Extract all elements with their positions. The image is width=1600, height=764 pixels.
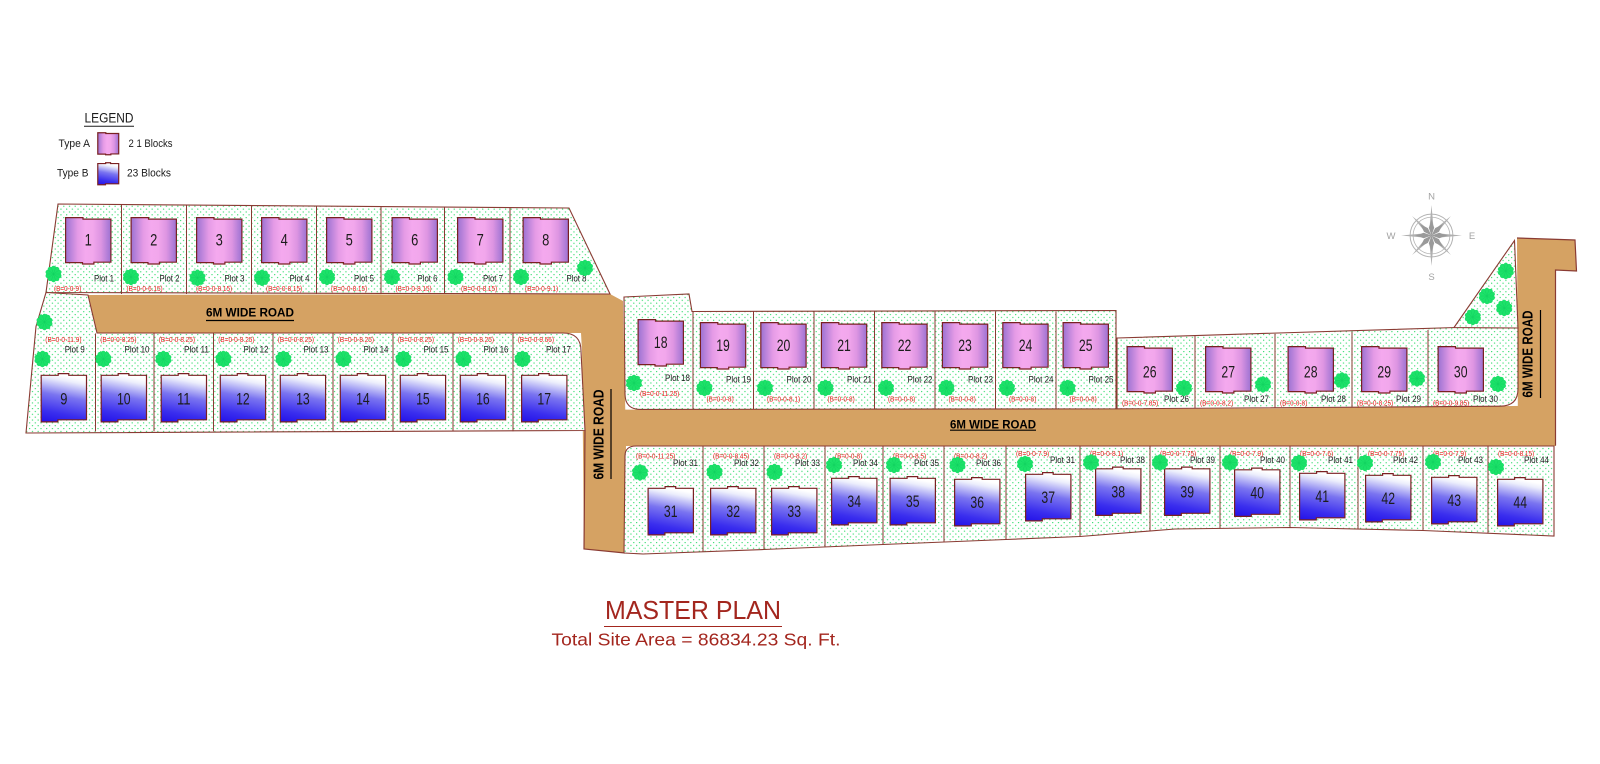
svg-text:(B=0-0-8.15): (B=0-0-8.15) bbox=[461, 284, 497, 293]
svg-text:6: 6 bbox=[411, 232, 418, 250]
svg-text:(B=0-0-8.15): (B=0-0-8.15) bbox=[331, 284, 367, 293]
svg-text:(B=0-0-8): (B=0-0-8) bbox=[707, 395, 734, 404]
svg-text:Plot 4: Plot 4 bbox=[290, 274, 310, 284]
svg-text:Plot 22: Plot 22 bbox=[908, 375, 933, 385]
svg-text:Plot 28: Plot 28 bbox=[1321, 394, 1346, 404]
svg-text:Plot 7: Plot 7 bbox=[483, 274, 503, 284]
svg-text:37: 37 bbox=[1041, 489, 1055, 507]
svg-text:Plot 15: Plot 15 bbox=[424, 344, 449, 354]
svg-text:Plot 12: Plot 12 bbox=[244, 344, 269, 354]
svg-text:10: 10 bbox=[117, 391, 131, 409]
svg-text:Type B: Type B bbox=[57, 168, 89, 180]
svg-text:Plot 19: Plot 19 bbox=[726, 375, 751, 385]
svg-text:Plot 36: Plot 36 bbox=[976, 458, 1001, 468]
svg-text:28: 28 bbox=[1304, 364, 1318, 382]
svg-text:(B=0-0-8): (B=0-0-8) bbox=[1280, 399, 1307, 408]
svg-text:(B=0-0-11.25): (B=0-0-11.25) bbox=[636, 452, 675, 461]
svg-text:Type A: Type A bbox=[59, 138, 91, 150]
svg-text:(B=0-0-8.25): (B=0-0-8.25) bbox=[1357, 399, 1393, 408]
svg-text:Plot 34: Plot 34 bbox=[853, 458, 878, 468]
svg-text:32: 32 bbox=[726, 503, 740, 521]
svg-text:3: 3 bbox=[216, 232, 223, 250]
svg-text:W: W bbox=[1387, 231, 1396, 242]
svg-text:(B=0-0-8): (B=0-0-8) bbox=[888, 395, 915, 404]
svg-text:23: 23 bbox=[958, 337, 972, 355]
svg-text:22: 22 bbox=[898, 337, 912, 355]
svg-text:17: 17 bbox=[537, 391, 551, 409]
svg-text:(B=0-0-9.1): (B=0-0-9.1) bbox=[525, 284, 558, 293]
svg-text:Plot 31: Plot 31 bbox=[673, 458, 698, 468]
svg-text:Plot 35: Plot 35 bbox=[914, 458, 939, 468]
svg-text:Plot 21: Plot 21 bbox=[847, 375, 872, 385]
svg-text:26: 26 bbox=[1143, 364, 1157, 382]
svg-text:42: 42 bbox=[1381, 490, 1395, 508]
svg-text:23 Blocks: 23 Blocks bbox=[127, 168, 172, 180]
svg-text:(B=0-0-7.9): (B=0-0-7.9) bbox=[1016, 449, 1049, 458]
svg-text:(B=0-0-8.25): (B=0-0-8.25) bbox=[458, 335, 494, 344]
svg-text:40: 40 bbox=[1250, 485, 1264, 503]
svg-text:Plot 32: Plot 32 bbox=[734, 458, 759, 468]
svg-text:33: 33 bbox=[787, 503, 801, 521]
svg-text:20: 20 bbox=[777, 337, 791, 355]
svg-text:MASTER PLAN: MASTER PLAN bbox=[605, 595, 781, 625]
svg-text:6M WIDE ROAD: 6M WIDE ROAD bbox=[950, 417, 1036, 431]
svg-text:Plot 14: Plot 14 bbox=[364, 344, 389, 354]
svg-text:Plot 20: Plot 20 bbox=[787, 375, 812, 385]
svg-text:(B=0-0-8): (B=0-0-8) bbox=[828, 395, 855, 404]
svg-text:30: 30 bbox=[1454, 364, 1468, 382]
svg-text:Plot 40: Plot 40 bbox=[1260, 455, 1285, 465]
svg-text:(B=0-0-8.25): (B=0-0-8.25) bbox=[159, 335, 195, 344]
svg-text:Plot 13: Plot 13 bbox=[304, 344, 329, 354]
svg-text:(B=0-0-8): (B=0-0-8) bbox=[1009, 395, 1036, 404]
svg-text:Plot 30: Plot 30 bbox=[1473, 394, 1498, 404]
svg-text:8: 8 bbox=[542, 232, 549, 250]
svg-text:Plot 9: Plot 9 bbox=[65, 344, 85, 354]
svg-text:24: 24 bbox=[1019, 337, 1033, 355]
svg-text:6M WIDE ROAD: 6M WIDE ROAD bbox=[206, 306, 294, 320]
svg-text:Plot 41: Plot 41 bbox=[1328, 455, 1353, 465]
svg-text:35: 35 bbox=[906, 493, 920, 511]
svg-text:(B=0-0-6.15): (B=0-0-6.15) bbox=[127, 284, 163, 293]
svg-text:(B=0-0-9): (B=0-0-9) bbox=[54, 284, 81, 293]
svg-text:(B=0-0-8.15): (B=0-0-8.15) bbox=[266, 284, 302, 293]
svg-text:Plot 27: Plot 27 bbox=[1244, 394, 1269, 404]
svg-text:Plot 1: Plot 1 bbox=[94, 274, 114, 284]
svg-text:Plot 42: Plot 42 bbox=[1393, 455, 1418, 465]
svg-text:E: E bbox=[1469, 231, 1475, 242]
svg-text:(B=0-0-8.25): (B=0-0-8.25) bbox=[100, 335, 136, 344]
svg-text:15: 15 bbox=[416, 391, 430, 409]
svg-text:(B=0-0-9.85): (B=0-0-9.85) bbox=[1433, 399, 1469, 408]
svg-text:Plot 10: Plot 10 bbox=[125, 344, 150, 354]
svg-text:(B=0-0-8.2): (B=0-0-8.2) bbox=[1200, 399, 1233, 408]
svg-text:Plot 23: Plot 23 bbox=[968, 375, 993, 385]
svg-text:(B=0-0-11.25): (B=0-0-11.25) bbox=[640, 389, 679, 398]
svg-text:11: 11 bbox=[177, 391, 191, 409]
svg-text:(B=0-0-9.56): (B=0-0-9.56) bbox=[518, 335, 554, 344]
svg-text:(B=0-0-8): (B=0-0-8) bbox=[949, 395, 976, 404]
svg-text:38: 38 bbox=[1111, 484, 1125, 502]
svg-text:Plot 16: Plot 16 bbox=[484, 344, 509, 354]
svg-text:Plot 18: Plot 18 bbox=[665, 373, 690, 383]
svg-text:5: 5 bbox=[346, 232, 353, 250]
svg-text:36: 36 bbox=[970, 494, 984, 512]
svg-text:Plot 2: Plot 2 bbox=[160, 274, 180, 284]
svg-text:2: 2 bbox=[150, 232, 157, 250]
svg-text:Plot 38: Plot 38 bbox=[1120, 455, 1145, 465]
svg-text:Plot 31: Plot 31 bbox=[1050, 455, 1075, 465]
svg-text:Plot 44: Plot 44 bbox=[1524, 455, 1549, 465]
svg-text:(B=0-0-8.1): (B=0-0-8.1) bbox=[767, 395, 800, 404]
svg-text:4: 4 bbox=[281, 232, 288, 250]
svg-text:29: 29 bbox=[1377, 364, 1391, 382]
svg-text:7: 7 bbox=[477, 232, 484, 250]
svg-text:39: 39 bbox=[1180, 484, 1194, 502]
svg-text:(B=0-0-11.9): (B=0-0-11.9) bbox=[45, 335, 81, 344]
svg-text:19: 19 bbox=[716, 337, 730, 355]
svg-text:14: 14 bbox=[356, 391, 370, 409]
svg-text:N: N bbox=[1428, 192, 1435, 203]
svg-text:S: S bbox=[1428, 272, 1434, 283]
svg-text:Total Site Area = 86834.23 Sq.: Total Site Area = 86834.23 Sq. Ft. bbox=[552, 630, 841, 650]
svg-text:(B=0-0-7.85): (B=0-0-7.85) bbox=[1122, 399, 1158, 408]
svg-text:44: 44 bbox=[1513, 494, 1527, 512]
svg-text:12: 12 bbox=[236, 391, 250, 409]
svg-text:Plot 25: Plot 25 bbox=[1089, 375, 1114, 385]
svg-text:6M WIDE ROAD: 6M WIDE ROAD bbox=[1521, 311, 1537, 398]
svg-text:2 1 Blocks: 2 1 Blocks bbox=[129, 138, 174, 150]
svg-text:LEGEND: LEGEND bbox=[85, 111, 134, 126]
svg-text:Plot 3: Plot 3 bbox=[225, 274, 245, 284]
svg-text:Plot 43: Plot 43 bbox=[1458, 455, 1483, 465]
svg-text:41: 41 bbox=[1315, 488, 1329, 506]
svg-text:43: 43 bbox=[1447, 492, 1461, 510]
svg-text:(B=0-0-8.15): (B=0-0-8.15) bbox=[396, 284, 432, 293]
svg-text:Plot 29: Plot 29 bbox=[1396, 394, 1421, 404]
svg-text:(B=0-0-8.25): (B=0-0-8.25) bbox=[338, 335, 374, 344]
svg-text:(B=0-0-8.15): (B=0-0-8.15) bbox=[196, 284, 232, 293]
svg-text:Plot 5: Plot 5 bbox=[354, 274, 374, 284]
svg-text:34: 34 bbox=[847, 493, 861, 511]
svg-text:13: 13 bbox=[296, 391, 310, 409]
svg-text:(B=0-0-8.25): (B=0-0-8.25) bbox=[218, 335, 254, 344]
svg-text:6M WIDE ROAD: 6M WIDE ROAD bbox=[592, 390, 608, 480]
svg-text:Plot 39: Plot 39 bbox=[1190, 455, 1215, 465]
svg-text:Plot 17: Plot 17 bbox=[546, 344, 571, 354]
svg-text:(B=0-0-8.25): (B=0-0-8.25) bbox=[278, 335, 314, 344]
svg-text:9: 9 bbox=[60, 391, 67, 409]
svg-text:27: 27 bbox=[1221, 364, 1235, 382]
svg-text:21: 21 bbox=[837, 337, 851, 355]
svg-text:(B=0-0-8.25): (B=0-0-8.25) bbox=[398, 335, 434, 344]
svg-text:Plot 24: Plot 24 bbox=[1029, 375, 1054, 385]
svg-text:31: 31 bbox=[664, 503, 678, 521]
svg-text:(B=0-0-8): (B=0-0-8) bbox=[1070, 395, 1097, 404]
svg-text:16: 16 bbox=[476, 391, 490, 409]
svg-text:18: 18 bbox=[654, 334, 668, 352]
svg-text:Plot 6: Plot 6 bbox=[418, 274, 438, 284]
svg-text:25: 25 bbox=[1079, 337, 1093, 355]
svg-text:1: 1 bbox=[85, 232, 92, 250]
svg-text:Plot 33: Plot 33 bbox=[795, 458, 820, 468]
svg-text:Plot 11: Plot 11 bbox=[184, 344, 209, 354]
